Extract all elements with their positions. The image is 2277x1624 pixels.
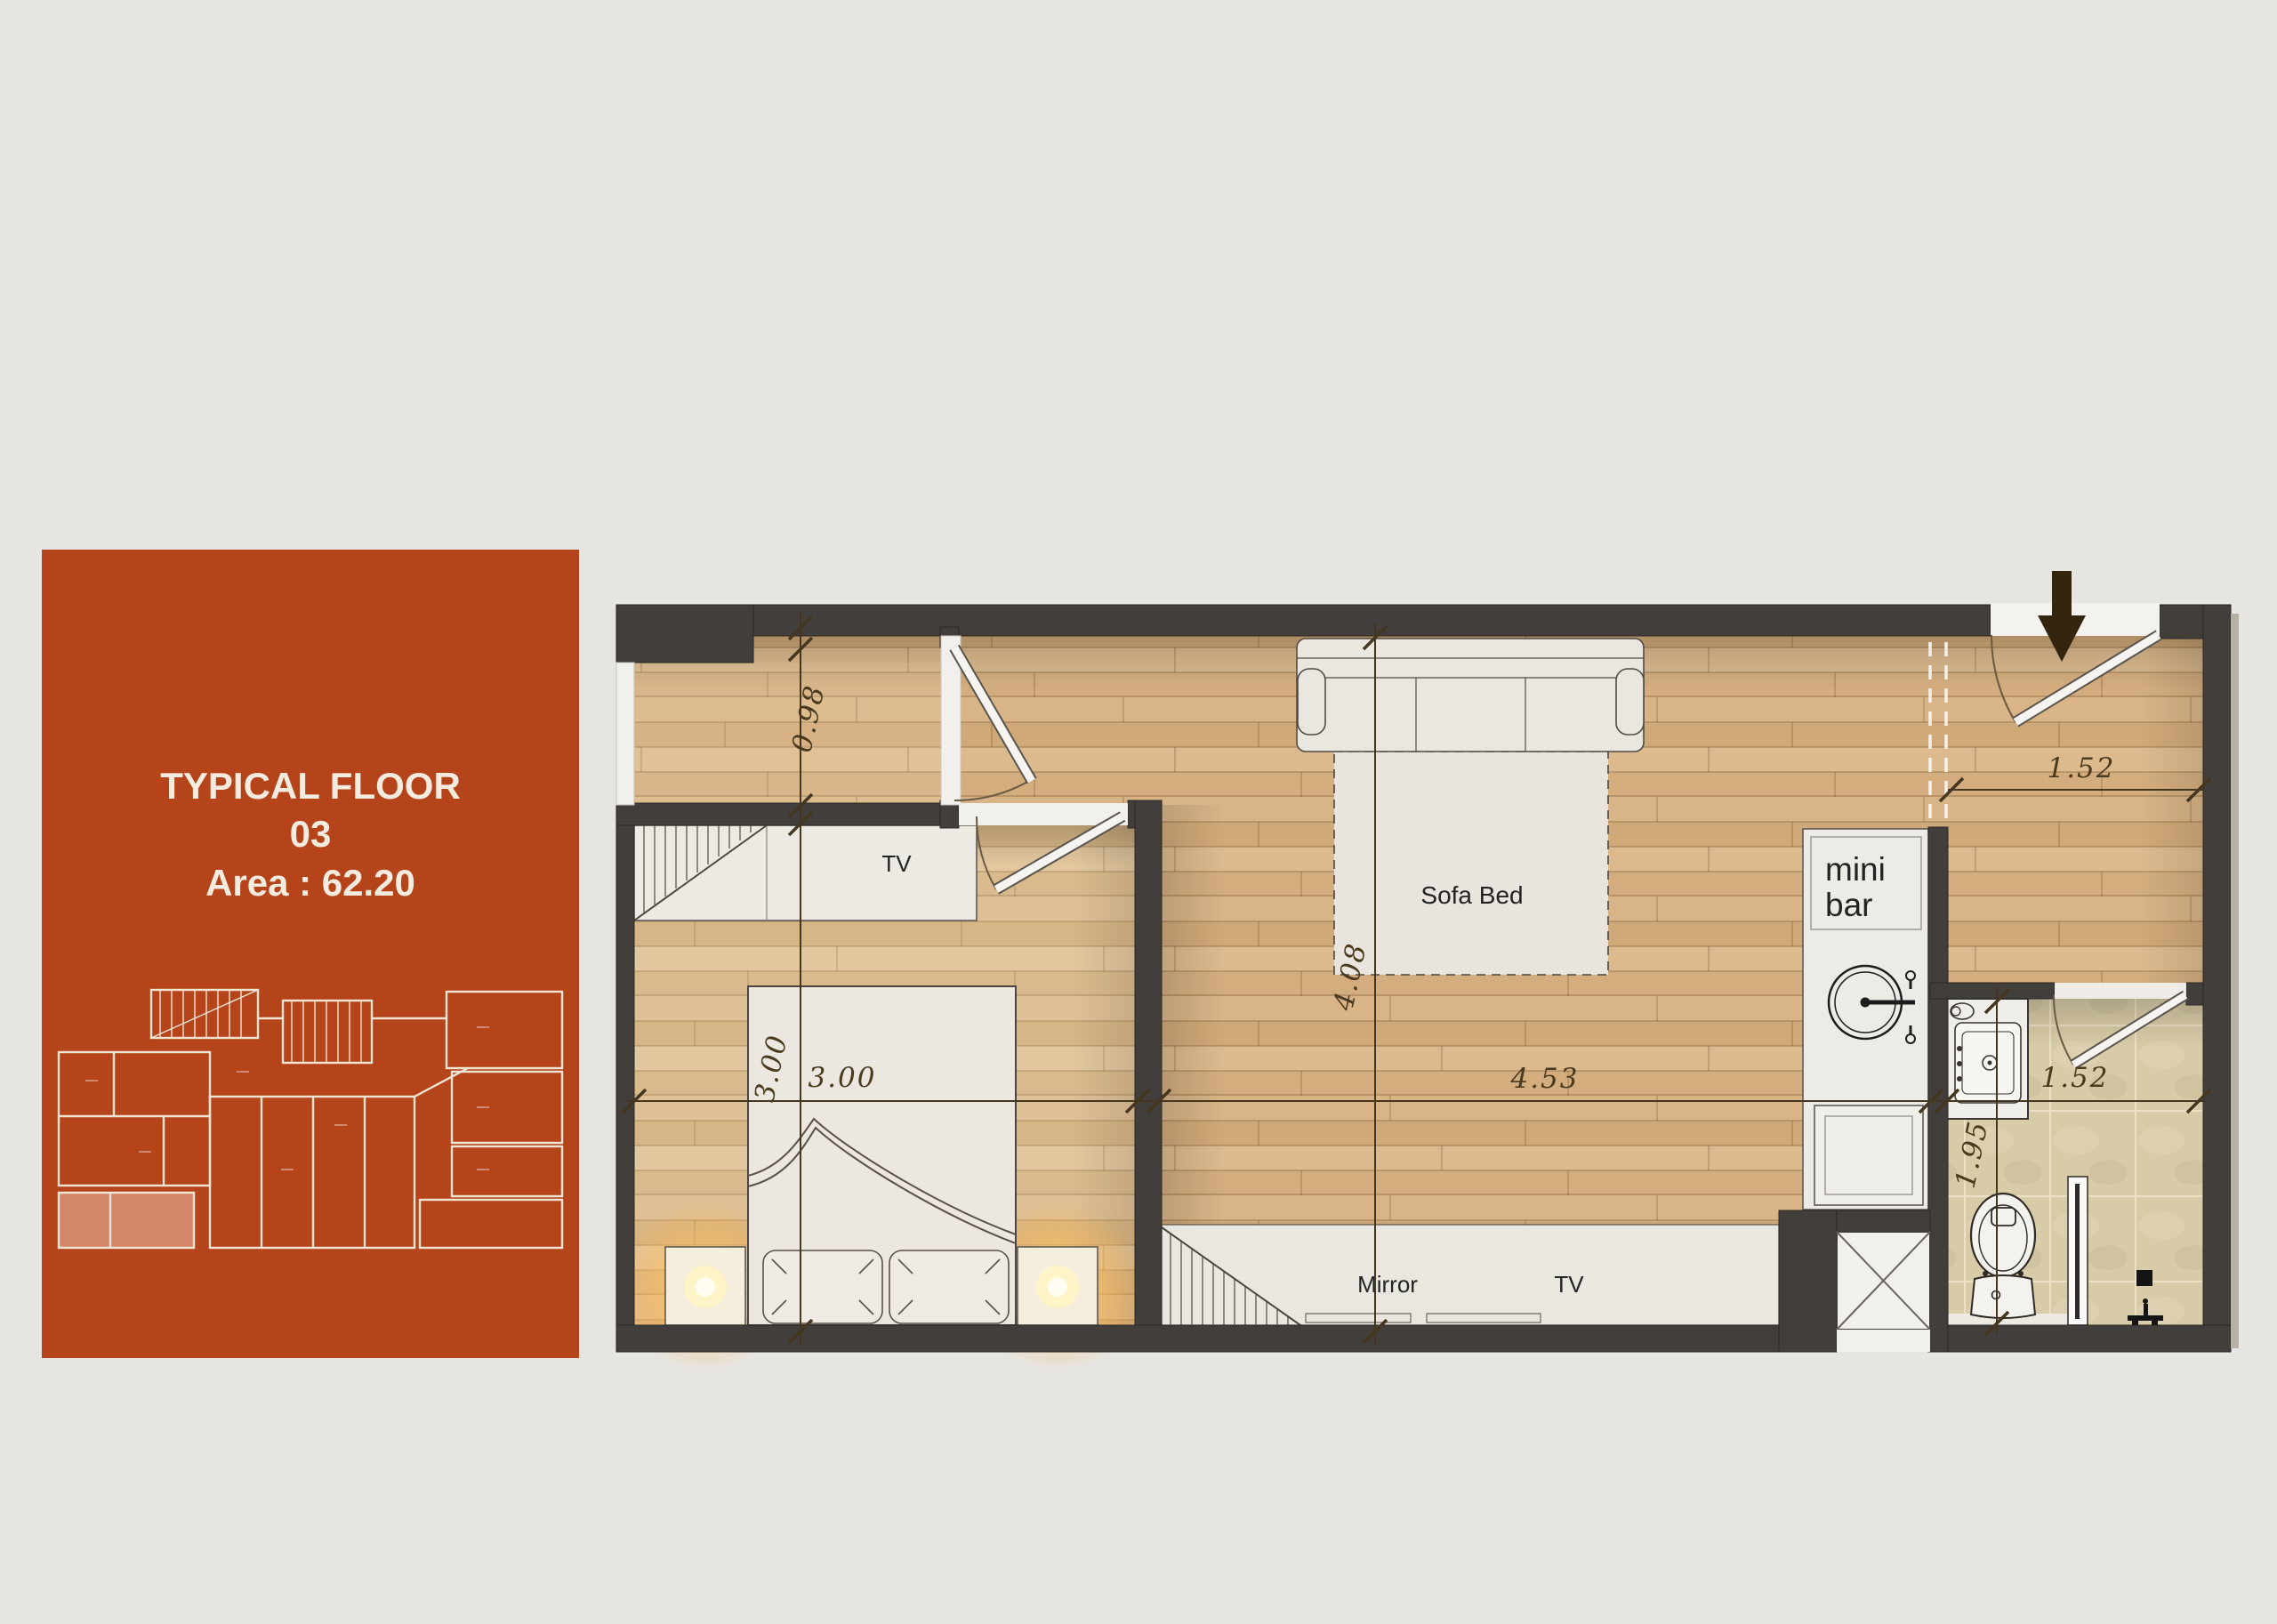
info-panel: TYPICAL FLOOR 03 Area : 62.20 xyxy=(42,550,579,1358)
wall-top-left-block xyxy=(616,605,753,663)
floorplan-page: TYPICAL FLOOR 03 Area : 62.20 xyxy=(0,0,2277,1624)
wall-shaft-left xyxy=(1779,1210,1837,1352)
wall-right xyxy=(2203,605,2231,1352)
dim-bedroom-horizontal: 3.00 xyxy=(808,1062,876,1094)
bathroom-door-threshold xyxy=(2055,983,2186,999)
minibar-label-line1: mini xyxy=(1825,851,1886,888)
sofa-bed-label: Sofa Bed xyxy=(1420,881,1523,909)
sofa-body xyxy=(1297,639,1644,752)
panel-title-line3: Area : 62.20 xyxy=(205,862,415,904)
wall-shaft-top xyxy=(1837,1210,1930,1232)
toilet xyxy=(1971,1194,2035,1318)
right-wall-outer-edge xyxy=(2231,614,2239,1348)
wardrobe-tv-console: TV xyxy=(634,825,977,921)
wall-bathroom-jamb xyxy=(2186,983,2203,1005)
minibar: mini bar xyxy=(1803,829,1928,1210)
dim-living-width: 4.53 xyxy=(1509,1063,1579,1095)
sofa-arm-right xyxy=(1616,669,1644,735)
minibar-fridge xyxy=(1814,1105,1923,1205)
floor-drain-icon xyxy=(2136,1270,2152,1286)
panel-title-line2: 03 xyxy=(290,813,332,855)
dim-bathroom-width: 1.52 xyxy=(2040,1062,2109,1094)
dim-entry-width: 1.52 xyxy=(2047,752,2115,784)
main-floorplan: TV xyxy=(616,571,2239,1371)
console-tv-label: TV xyxy=(1554,1271,1584,1298)
wall-bottom-right xyxy=(1930,1325,2231,1352)
wall-minibar-bathroom xyxy=(1928,827,1948,1352)
wall-bedroom-living xyxy=(1135,800,1162,1325)
wall-left xyxy=(616,805,634,1352)
shower-screen xyxy=(2068,1177,2088,1325)
wall-top xyxy=(616,605,1991,636)
hall-window-strip xyxy=(616,663,634,805)
minibar-label-line2: bar xyxy=(1825,887,1872,923)
sofa-bed: Sofa Bed xyxy=(1297,639,1644,975)
mirror-label: Mirror xyxy=(1357,1271,1418,1298)
sofa-arm-left xyxy=(1298,669,1325,735)
panel-title-line1: TYPICAL FLOOR xyxy=(160,765,461,807)
wall-hall-bedroom xyxy=(616,803,940,825)
wall-bottom-left xyxy=(616,1325,1837,1352)
wall-bathroom-top xyxy=(1930,983,2055,999)
mirror-tv-console: Mirror TV xyxy=(1162,1225,1779,1325)
bedroom-tv-label: TV xyxy=(881,850,912,877)
shaft-gap xyxy=(1837,1330,1930,1352)
